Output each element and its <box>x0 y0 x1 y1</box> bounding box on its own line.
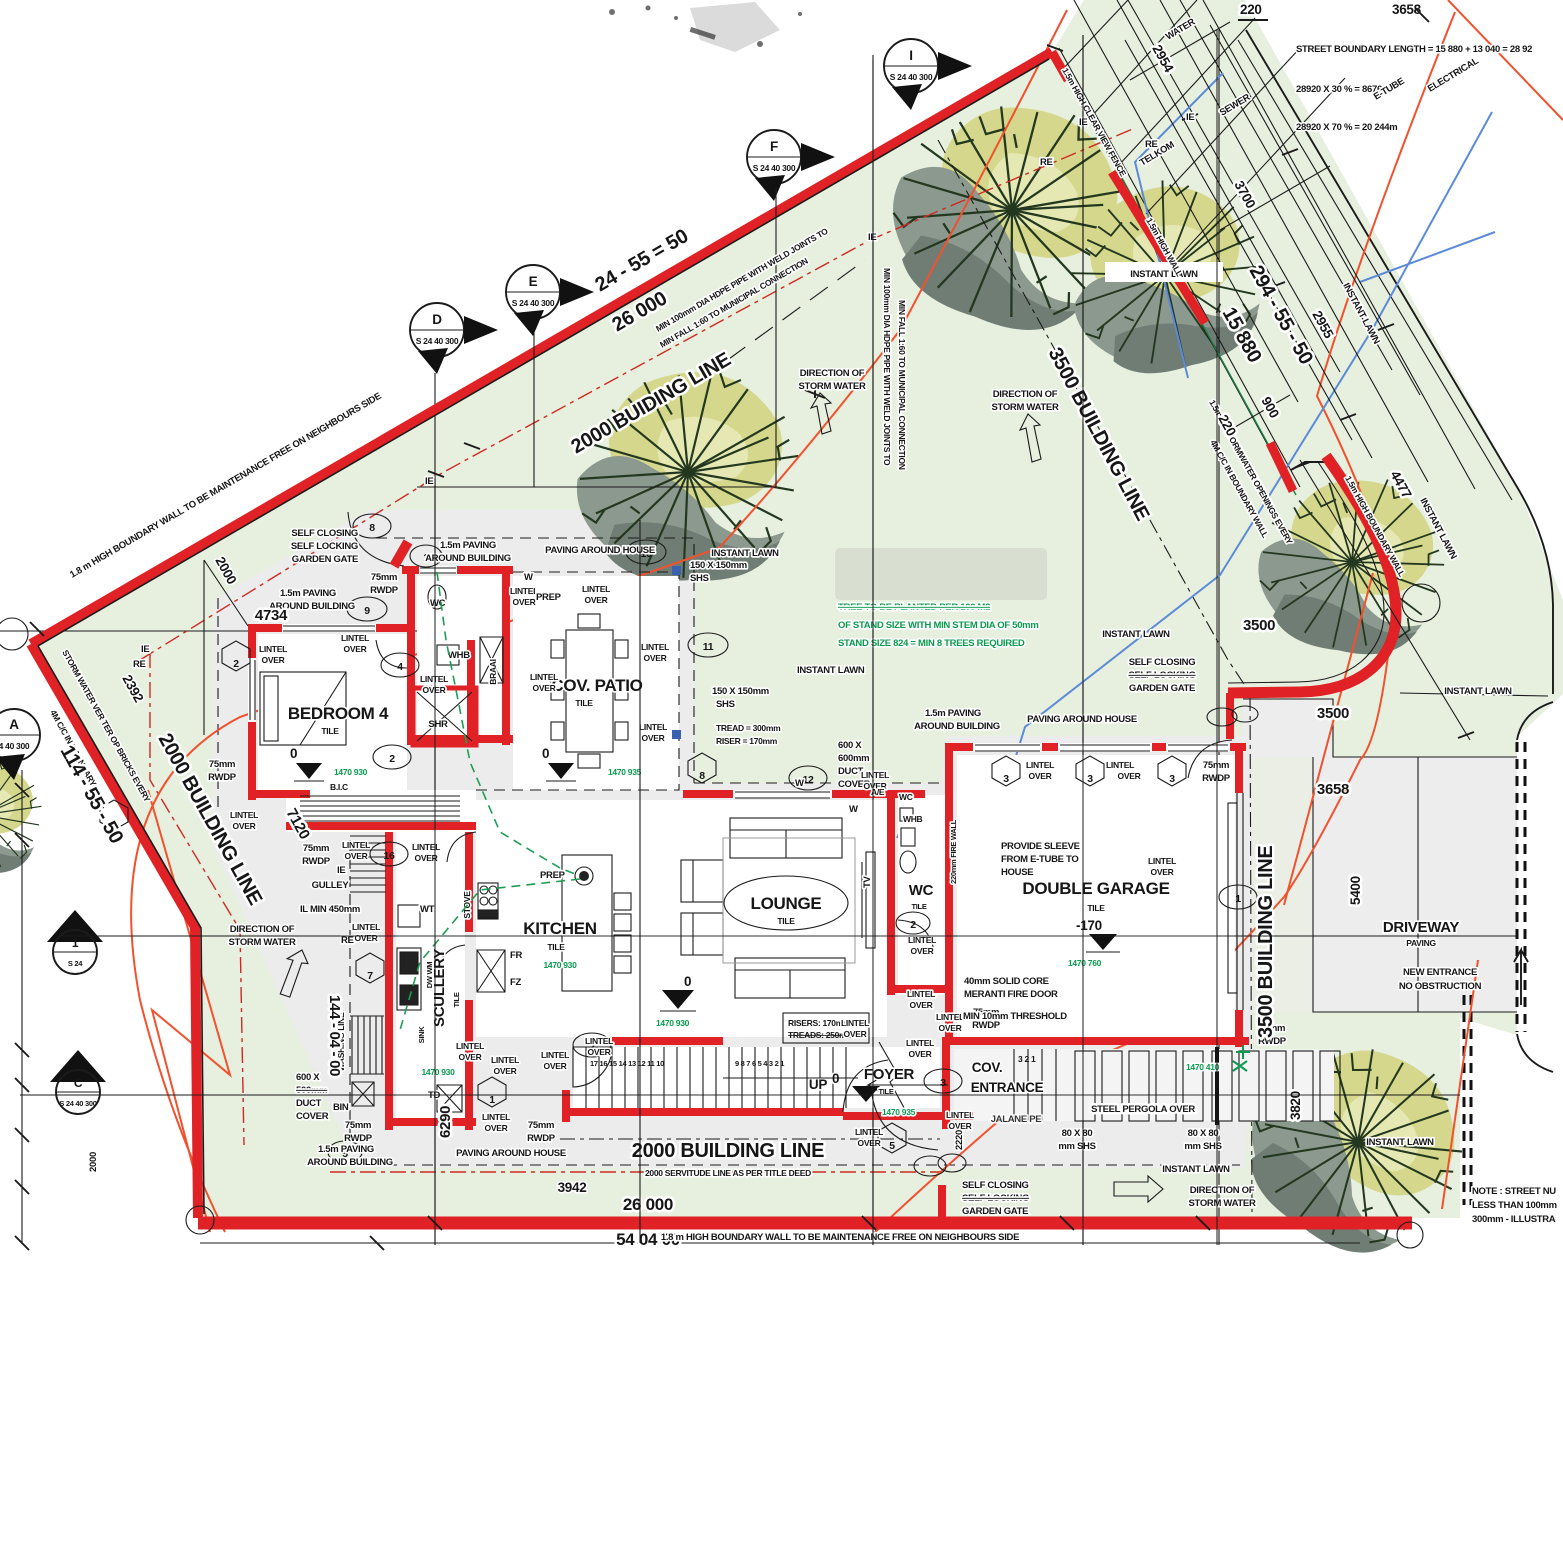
svg-text:2000 BUILDING LINE: 2000 BUILDING LINE <box>632 1140 824 1162</box>
svg-text:TILE: TILE <box>1087 903 1105 913</box>
svg-text:OVER: OVER <box>459 1052 482 1062</box>
svg-text:RE: RE <box>1040 157 1053 168</box>
svg-text:LINTEL: LINTEL <box>342 840 370 850</box>
svg-text:1.5m PAVING: 1.5m PAVING <box>925 708 981 719</box>
svg-text:S 24 40 300: S 24 40 300 <box>753 163 796 173</box>
svg-text:COV.: COV. <box>972 1060 1003 1075</box>
svg-text:TILE: TILE <box>911 902 926 911</box>
svg-text:DOUBLE GARAGE: DOUBLE GARAGE <box>1022 879 1169 898</box>
svg-text:4 40 300: 4 40 300 <box>0 741 30 751</box>
svg-text:OVER: OVER <box>1151 867 1174 877</box>
svg-text:TILE: TILE <box>575 698 593 708</box>
svg-text:IL MIN 450mm: IL MIN 450mm <box>300 904 360 915</box>
svg-text:RE: RE <box>341 935 354 946</box>
svg-text:BIN: BIN <box>333 1102 349 1113</box>
svg-text:NEW ENTRANCE: NEW ENTRANCE <box>1403 967 1477 978</box>
svg-text:LINTEL: LINTEL <box>1148 856 1176 866</box>
svg-text:0: 0 <box>684 974 691 989</box>
svg-text:PAVING: PAVING <box>1406 938 1436 948</box>
svg-text:150 X 150mm: 150 X 150mm <box>690 560 747 571</box>
svg-text:TILE: TILE <box>777 916 795 926</box>
svg-text:TILE: TILE <box>547 942 565 952</box>
svg-text:-170: -170 <box>1076 918 1102 933</box>
svg-text:SELF LOCKING: SELF LOCKING <box>1128 670 1195 681</box>
svg-text:SELF LOCKING: SELF LOCKING <box>291 541 358 552</box>
svg-text:600 X: 600 X <box>838 740 862 751</box>
svg-text:OVER: OVER <box>423 685 446 695</box>
svg-text:12: 12 <box>802 774 814 786</box>
svg-text:STORM WATER: STORM WATER <box>991 402 1059 413</box>
svg-text:OVER: OVER <box>494 1066 517 1076</box>
svg-text:IE: IE <box>425 476 433 487</box>
svg-text:OVER: OVER <box>844 1029 867 1039</box>
svg-text:RWDP: RWDP <box>344 1133 373 1144</box>
svg-text:9: 9 <box>364 605 370 617</box>
svg-text:75mm: 75mm <box>1203 760 1229 771</box>
svg-text:3500: 3500 <box>1317 705 1349 722</box>
svg-text:2000: 2000 <box>88 1152 99 1172</box>
svg-text:INSTANT LAWN: INSTANT LAWN <box>797 665 865 676</box>
svg-text:3: 3 <box>1003 773 1009 785</box>
svg-text:1: 1 <box>489 1094 495 1106</box>
svg-text:LINTEL: LINTEL <box>491 1055 519 1065</box>
svg-text:75mm: 75mm <box>371 572 397 583</box>
svg-text:B.I.C: B.I.C <box>330 782 348 792</box>
svg-text:LINTEL: LINTEL <box>861 770 889 780</box>
svg-text:UP: UP <box>809 1077 827 1092</box>
svg-text:RWDP: RWDP <box>527 1133 556 1144</box>
svg-text:OVER: OVER <box>544 1061 567 1071</box>
svg-text:500mm: 500mm <box>296 1085 327 1096</box>
svg-text:SELF LOCKING: SELF LOCKING <box>962 1193 1029 1204</box>
svg-text:1470 930: 1470 930 <box>334 767 368 777</box>
svg-text:RE: RE <box>133 659 146 670</box>
svg-text:PAVING AROUND HOUSE: PAVING AROUND HOUSE <box>1027 714 1137 725</box>
svg-text:INSTANT LAWN: INSTANT LAWN <box>711 548 779 559</box>
svg-text:NO OBSTRUCTION: NO OBSTRUCTION <box>1399 981 1482 992</box>
svg-text:LINTEL: LINTEL <box>259 644 287 654</box>
svg-text:OVER: OVER <box>585 595 608 605</box>
svg-text:STORM WATER: STORM WATER <box>228 937 296 948</box>
svg-text:1.5m PAVING: 1.5m PAVING <box>318 1144 374 1155</box>
svg-text:1470 930: 1470 930 <box>543 960 577 970</box>
svg-text:LINTEL: LINTEL <box>907 989 935 999</box>
svg-text:SELF CLOSING: SELF CLOSING <box>1129 657 1196 668</box>
svg-text:W: W <box>795 778 804 789</box>
svg-text:600 X: 600 X <box>296 1072 320 1083</box>
svg-text:S 24 40 300: S 24 40 300 <box>512 298 555 308</box>
svg-text:OVER: OVER <box>644 653 667 663</box>
svg-text:OVER: OVER <box>345 851 368 861</box>
svg-text:4: 4 <box>397 661 403 673</box>
svg-text:DRIVEWAY: DRIVEWAY <box>1383 919 1460 936</box>
svg-text:S 24: S 24 <box>68 959 83 968</box>
svg-text:PREP: PREP <box>540 870 566 881</box>
svg-text:LINTEL: LINTEL <box>841 1018 869 1028</box>
svg-text:75mm: 75mm <box>303 843 329 854</box>
svg-text:LINTEL: LINTEL <box>510 586 538 596</box>
svg-text:3: 3 <box>1169 773 1175 785</box>
svg-text:150 X 150mm: 150 X 150mm <box>712 686 769 697</box>
svg-text:OVER: OVER <box>909 1049 932 1059</box>
svg-text:LINTEL: LINTEL <box>906 1038 934 1048</box>
svg-text:1: 1 <box>72 936 79 950</box>
svg-text:GULLEY: GULLEY <box>312 880 350 891</box>
svg-text:GARDEN GATE: GARDEN GATE <box>292 554 358 565</box>
svg-text:LINTEL: LINTEL <box>352 922 380 932</box>
svg-text:3 2 1: 3 2 1 <box>1018 1054 1036 1064</box>
svg-text:WC: WC <box>909 882 934 899</box>
svg-text:OVER: OVER <box>513 597 536 607</box>
svg-text:W: W <box>849 804 858 815</box>
svg-text:600mm: 600mm <box>838 753 869 764</box>
svg-text:DIRECTION OF: DIRECTION OF <box>1190 1185 1255 1196</box>
svg-text:DIRECTION OF: DIRECTION OF <box>800 368 865 379</box>
svg-text:1470 935: 1470 935 <box>608 767 642 777</box>
svg-text:5400: 5400 <box>1348 876 1363 905</box>
svg-text:LINTEL: LINTEL <box>412 842 440 852</box>
svg-text:LINTEL: LINTEL <box>1026 760 1054 770</box>
svg-text:MIN 100mm DIA HDPE PIPE WITH W: MIN 100mm DIA HDPE PIPE WITH WELD JOINTS… <box>882 268 892 466</box>
svg-text:FZ: FZ <box>510 977 522 988</box>
svg-text:BEDROOM 4: BEDROOM 4 <box>288 704 389 723</box>
svg-text:2: 2 <box>389 753 395 765</box>
svg-text:OVER: OVER <box>911 946 934 956</box>
svg-text:MIN 10mm THRESHOLD: MIN 10mm THRESHOLD <box>963 1011 1067 1022</box>
svg-text:80 X 80: 80 X 80 <box>1062 1128 1093 1139</box>
svg-text:OVER: OVER <box>949 1121 972 1131</box>
svg-text:OVER: OVER <box>485 1123 508 1133</box>
svg-text:GARDEN GATE: GARDEN GATE <box>962 1206 1028 1217</box>
svg-text:1.8 m HIGH BOUNDARY WALL TO BE: 1.8 m HIGH BOUNDARY WALL TO BE MAINTENAN… <box>661 1232 1019 1243</box>
svg-text:SELF CLOSING: SELF CLOSING <box>291 528 358 539</box>
svg-text:STORM WATER: STORM WATER <box>798 381 866 392</box>
svg-text:LINTEL: LINTEL <box>1106 760 1134 770</box>
svg-text:3: 3 <box>940 1077 946 1089</box>
svg-text:NOTE : STREET NU: NOTE : STREET NU <box>1472 1186 1556 1197</box>
svg-text:6290: 6290 <box>437 1106 454 1138</box>
svg-text:LINTEL: LINTEL <box>641 642 669 652</box>
svg-text:1470 410: 1470 410 <box>1186 1062 1220 1072</box>
svg-text:SHR: SHR <box>428 719 448 730</box>
svg-text:LINTEL: LINTEL <box>456 1041 484 1051</box>
svg-text:40mm SOLID CORE: 40mm SOLID CORE <box>964 976 1049 987</box>
svg-text:LINTEL: LINTEL <box>420 674 448 684</box>
svg-text:DIRECTION OF: DIRECTION OF <box>230 924 295 935</box>
svg-text:0: 0 <box>542 746 549 761</box>
svg-text:WC: WC <box>899 792 913 802</box>
svg-text:3: 3 <box>1087 773 1093 785</box>
svg-text:TREAD = 300mm: TREAD = 300mm <box>716 723 781 733</box>
svg-text:LINTEL: LINTEL <box>639 722 667 732</box>
svg-text:OVER: OVER <box>642 733 665 743</box>
svg-text:PAVING AROUND HOUSE: PAVING AROUND HOUSE <box>545 545 655 556</box>
svg-text:COV. PATIO: COV. PATIO <box>551 676 642 695</box>
svg-text:28920 X 70 % = 20 244m: 28920 X 70 % = 20 244m <box>1296 122 1397 133</box>
svg-text:75mm: 75mm <box>209 759 235 770</box>
svg-text:OVER: OVER <box>262 655 285 665</box>
svg-text:300mm - ILLUSTRA: 300mm - ILLUSTRA <box>1472 1214 1556 1225</box>
svg-text:I: I <box>909 48 912 63</box>
svg-text:RWDP: RWDP <box>302 856 331 867</box>
svg-text:IE: IE <box>337 865 345 876</box>
svg-text:1470 935: 1470 935 <box>882 1107 916 1117</box>
svg-text:OVER: OVER <box>588 1047 611 1057</box>
svg-text:8: 8 <box>699 770 705 782</box>
svg-text:IE: IE <box>141 644 149 655</box>
svg-text:OVER: OVER <box>533 683 556 693</box>
svg-text:OVER: OVER <box>344 644 367 654</box>
svg-text:SINK: SINK <box>417 1026 426 1044</box>
svg-text:OVER: OVER <box>1118 771 1141 781</box>
svg-text:DUCT: DUCT <box>296 1098 322 1109</box>
svg-text:LESS THAN 100mm: LESS THAN 100mm <box>1472 1200 1557 1211</box>
svg-text:LINTEL: LINTEL <box>230 810 258 820</box>
svg-text:INSTANT LAWN: INSTANT LAWN <box>1162 1164 1230 1175</box>
svg-text:LINTEL: LINTEL <box>530 672 558 682</box>
svg-text:LINTEL: LINTEL <box>482 1112 510 1122</box>
svg-text:TREE TO BE PLANTED PER 100 M2: TREE TO BE PLANTED PER 100 M2 <box>838 602 990 613</box>
svg-text:ENTRANCE: ENTRANCE <box>971 1080 1044 1095</box>
svg-text:LINTEL: LINTEL <box>936 1012 964 1022</box>
svg-text:LINTEL: LINTEL <box>585 1036 613 1046</box>
svg-text:LOUNGE: LOUNGE <box>751 894 822 913</box>
svg-text:HOUSE: HOUSE <box>1001 867 1033 878</box>
svg-text:STAND SIZE 824 = MIN 8 TREES: STAND SIZE 824 = MIN 8 TREES REQUIRED <box>838 638 1025 649</box>
svg-text:9 8 7 6 5 4 3 2 1: 9 8 7 6 5 4 3 2 1 <box>735 1059 784 1068</box>
svg-text:INSTANT LAWN: INSTANT LAWN <box>1366 1137 1434 1148</box>
svg-text:FROM E-TUBE TO: FROM E-TUBE TO <box>1001 854 1078 865</box>
svg-text:DW WM: DW WM <box>425 962 434 988</box>
svg-text:mm SHS: mm SHS <box>1184 1141 1221 1152</box>
svg-text:OVER: OVER <box>939 1023 962 1033</box>
svg-text:INSTANT LAWN: INSTANT LAWN <box>1102 629 1170 640</box>
svg-text:OVER: OVER <box>1029 771 1052 781</box>
svg-text:RWDP: RWDP <box>370 585 399 596</box>
svg-text:4734: 4734 <box>255 607 288 624</box>
svg-text:WC: WC <box>430 598 446 609</box>
svg-text:mm SHS: mm SHS <box>1058 1141 1095 1152</box>
svg-text:STEEL PERGOLA OVER: STEEL PERGOLA OVER <box>1091 1104 1195 1115</box>
svg-text:FR: FR <box>510 950 523 961</box>
svg-text:220: 220 <box>1240 2 1262 17</box>
svg-text:OVER: OVER <box>910 1000 933 1010</box>
svg-text:17 16 15 14 13 12 11 10: 17 16 15 14 13 12 11 10 <box>590 1059 664 1068</box>
svg-text:SHS: SHS <box>690 573 709 584</box>
svg-text:TILE: TILE <box>452 992 461 1007</box>
svg-text:LINTEL: LINTEL <box>946 1110 974 1120</box>
svg-text:11: 11 <box>703 641 714 653</box>
svg-text:WHB: WHB <box>903 814 923 824</box>
svg-text:80 X 80: 80 X 80 <box>1188 1128 1219 1139</box>
svg-text:3500: 3500 <box>1243 617 1275 634</box>
svg-text:1470 760: 1470 760 <box>1068 958 1102 968</box>
svg-text:OVER: OVER <box>233 821 256 831</box>
svg-text:AROUND BUILDING: AROUND BUILDING <box>307 1157 393 1168</box>
svg-text:A: A <box>9 717 19 732</box>
svg-text:F: F <box>770 139 778 154</box>
svg-text:3500 BUILDING LINE: 3500 BUILDING LINE <box>1255 846 1277 1038</box>
svg-text:TILE: TILE <box>321 726 339 736</box>
svg-text:1.5m PAVING: 1.5m PAVING <box>280 588 336 599</box>
svg-text:OVER: OVER <box>858 1138 881 1148</box>
svg-text:2220: 2220 <box>954 1130 965 1150</box>
svg-text:DUCT: DUCT <box>838 766 864 777</box>
svg-text:SHS: SHS <box>716 699 735 710</box>
svg-text:1: 1 <box>1235 893 1241 905</box>
svg-text:LINTEL: LINTEL <box>582 584 610 594</box>
svg-text:0: 0 <box>290 746 297 761</box>
svg-text:220mm FIRE WALL: 220mm FIRE WALL <box>949 819 958 884</box>
svg-text:GARDEN GATE: GARDEN GATE <box>1129 683 1195 694</box>
svg-text:JALANE PE: JALANE PE <box>991 1114 1042 1125</box>
svg-text:2: 2 <box>233 658 239 670</box>
svg-text:IE: IE <box>868 232 876 243</box>
svg-text:STORM WATER: STORM WATER <box>1188 1198 1256 1209</box>
svg-text:STREET BOUNDARY LENGTH = 15 88: STREET BOUNDARY LENGTH = 15 880 + 13 040… <box>1296 44 1532 55</box>
svg-text:MIN FALL 1:60 TO MUNICIPAL CON: MIN FALL 1:60 TO MUNICIPAL CONNECTION <box>897 300 907 470</box>
svg-text:75mm: 75mm <box>528 1120 554 1131</box>
svg-text:E: E <box>529 274 538 289</box>
svg-text:PROVIDE SLEEVE: PROVIDE SLEEVE <box>1001 841 1080 852</box>
svg-text:2: 2 <box>910 919 916 931</box>
svg-text:OF STAND SIZE WITH MIN STEM DI: OF STAND SIZE WITH MIN STEM DIA OF 50mm <box>838 620 1038 631</box>
svg-text:5: 5 <box>889 1140 895 1152</box>
svg-text:KITCHEN: KITCHEN <box>523 919 596 938</box>
svg-text:C: C <box>74 1076 83 1090</box>
svg-text:AROUND BUILDING: AROUND BUILDING <box>914 721 1000 732</box>
svg-text:S 24 40 300: S 24 40 300 <box>890 72 933 82</box>
svg-text:S 24 40 300: S 24 40 300 <box>59 1099 96 1108</box>
svg-text:144 - 04 - 00: 144 - 04 - 00 <box>326 995 343 1076</box>
svg-text:3658: 3658 <box>1317 781 1349 798</box>
svg-text:16: 16 <box>383 850 395 862</box>
svg-text:AROUND BUILDING: AROUND BUILDING <box>425 553 511 564</box>
svg-text:26 000: 26 000 <box>623 1195 673 1214</box>
svg-text:LINTEL: LINTEL <box>341 633 369 643</box>
svg-text:75mm: 75mm <box>345 1120 371 1131</box>
svg-text:7: 7 <box>367 970 373 982</box>
svg-text:COVER: COVER <box>296 1111 329 1122</box>
svg-text:MERANTI FIRE DOOR: MERANTI FIRE DOOR <box>964 989 1058 1000</box>
svg-text:BRAAI: BRAAI <box>488 659 498 684</box>
svg-text:PREP: PREP <box>536 592 562 603</box>
svg-text:TV: TV <box>862 875 873 888</box>
svg-text:SELF CLOSING: SELF CLOSING <box>962 1180 1029 1191</box>
svg-text:S 24 40 300: S 24 40 300 <box>416 336 459 346</box>
svg-text:W: W <box>524 572 533 583</box>
svg-text:D: D <box>432 312 442 327</box>
svg-text:FOYER: FOYER <box>864 1066 915 1083</box>
svg-text:IE: IE <box>1186 112 1194 123</box>
svg-text:LINTEL: LINTEL <box>855 1127 883 1137</box>
svg-text:1470 930: 1470 930 <box>421 1067 455 1077</box>
svg-text:OVER: OVER <box>355 933 378 943</box>
svg-text:LINTEL: LINTEL <box>541 1050 569 1060</box>
svg-text:INSTANT LAWN: INSTANT LAWN <box>1444 686 1512 697</box>
svg-text:OVER: OVER <box>415 853 438 863</box>
svg-text:8: 8 <box>369 522 375 534</box>
svg-text:2000 SERVITUDE LINE AS PER TIT: 2000 SERVITUDE LINE AS PER TITLE DEED <box>645 1168 811 1178</box>
svg-text:INSTANT LAWN: INSTANT LAWN <box>1130 269 1198 280</box>
svg-text:RISER = 170mm: RISER = 170mm <box>716 736 778 746</box>
svg-text:1.5m PAVING: 1.5m PAVING <box>440 540 496 551</box>
svg-text:WHB: WHB <box>448 650 470 661</box>
svg-text:RWDP: RWDP <box>208 772 237 783</box>
svg-text:PAVING AROUND HOUSE: PAVING AROUND HOUSE <box>456 1148 566 1159</box>
svg-text:DIRECTION OF: DIRECTION OF <box>993 389 1058 400</box>
svg-text:WT: WT <box>420 904 435 915</box>
svg-text:3942: 3942 <box>558 1180 587 1195</box>
svg-text:1470 930: 1470 930 <box>656 1018 690 1028</box>
